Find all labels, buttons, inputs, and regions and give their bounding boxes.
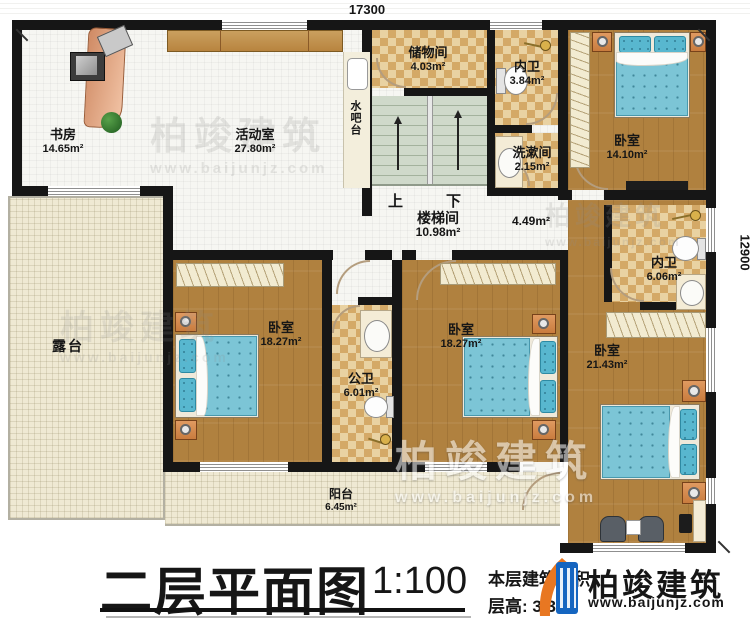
label-washroom-name: 洗漱间 xyxy=(502,146,562,161)
stairs-landing-line xyxy=(372,184,487,186)
watermark-2-url: www.baijunjz.com xyxy=(545,235,681,249)
label-stairwell-area: 10.98m² xyxy=(396,226,480,240)
dimension-right: 12900 xyxy=(738,218,750,288)
watermark-1-url: www.baijunjz.com xyxy=(150,160,327,177)
label-bedroom-left-name: 卧室 xyxy=(246,321,316,336)
label-storage-name: 储物间 xyxy=(385,46,471,61)
nightstand-tr-right-knob xyxy=(693,36,704,47)
label-bedroom-mid: 卧室 18.27m² xyxy=(426,323,496,351)
label-bedroom-mid-name: 卧室 xyxy=(426,323,496,338)
label-stairs-down: 下 xyxy=(446,190,461,211)
tv-console-bedroom-tr xyxy=(626,181,688,190)
label-washroom-area: 2.15m² xyxy=(502,161,562,174)
watermark-4-text: 柏竣建筑 xyxy=(395,438,595,485)
label-stairwell-name: 楼梯间 xyxy=(396,210,480,226)
public-bath-sink xyxy=(364,320,390,352)
speaker-br xyxy=(679,514,692,533)
label-activity: 活动室 27.80m² xyxy=(212,128,298,156)
wall-right xyxy=(706,20,716,553)
label-bath-top-name: 内卫 xyxy=(498,60,556,75)
wall-vestibule-top-right xyxy=(365,250,392,260)
window-study-bottom xyxy=(48,186,140,196)
label-bath-right-area: 6.06m² xyxy=(632,271,696,284)
label-bedroom-tr: 卧室 14.10m² xyxy=(592,134,662,162)
computer-screen-icon xyxy=(76,56,97,75)
label-study-name: 书房 xyxy=(20,128,106,143)
cabinet-divider-2 xyxy=(308,30,309,52)
wall-bedroom-left-top xyxy=(163,250,333,260)
label-bath-right-name: 内卫 xyxy=(632,256,696,271)
bed-tr-pillow-left xyxy=(619,36,651,53)
label-bath-top: 内卫 3.84m² xyxy=(498,60,556,88)
watermark-3-text: 柏竣建筑 xyxy=(60,309,220,347)
wardrobe-bedroom-tr xyxy=(570,32,590,168)
label-public-bath-area: 6.01m² xyxy=(330,387,392,400)
window-right-bath xyxy=(706,328,716,392)
label-activity-area: 27.80m² xyxy=(212,143,298,156)
title-underline-thin xyxy=(106,616,471,618)
nightstand-mid-top-knob xyxy=(538,318,549,329)
wall-bedroom-left-right xyxy=(322,260,332,462)
bed-br-pillow-bottom xyxy=(680,444,697,475)
window-bottom-bedroom-br xyxy=(593,543,685,553)
chair-br-left xyxy=(600,516,626,542)
plan-scale: 1:100 xyxy=(372,560,467,603)
window-right-bedroom-tr xyxy=(706,208,716,252)
dimension-top: 17300 xyxy=(332,2,402,17)
title-underline-thick xyxy=(100,608,465,612)
label-activity-name: 活动室 xyxy=(212,128,298,143)
watermark-4: 柏竣建筑 www.baijunjz.com xyxy=(395,428,597,507)
stairs-down-arrow-head xyxy=(454,106,462,118)
dresser-br xyxy=(693,500,706,542)
label-study: 书房 14.65m² xyxy=(20,128,106,156)
wall-public-bath-top xyxy=(358,297,392,305)
wall-bedroom-mid-top-a xyxy=(402,250,416,260)
nightstand-br-bottom-knob xyxy=(688,487,700,499)
waterbar-label: 水吧台 xyxy=(347,100,363,154)
bed-br-pillow-top xyxy=(680,409,697,440)
dim-tick-bottom-right xyxy=(718,541,731,554)
label-bath-top-area: 3.84m² xyxy=(498,75,556,88)
brand-logo-glyph-icon xyxy=(534,554,584,618)
label-bath-right: 内卫 6.06m² xyxy=(632,256,696,284)
bed-mid-sheet-fold xyxy=(528,338,540,416)
chair-br-right xyxy=(638,516,664,542)
label-bedroom-left: 卧室 18.27m² xyxy=(246,321,316,349)
brand-logo-mark xyxy=(534,554,584,618)
bed-mid-pillow-bottom xyxy=(540,380,556,413)
wall-washroom-bottom xyxy=(487,188,568,196)
shower-head-icon-right xyxy=(690,210,701,221)
watermark-2: 柏竣建筑 www.baijunjz.com xyxy=(545,196,681,251)
waterbar-sink xyxy=(347,58,368,90)
label-bedroom-br: 卧室 21.43m² xyxy=(572,344,642,372)
label-terrace: 露台 xyxy=(52,336,84,356)
label-stairs-up: 上 xyxy=(388,190,403,211)
stairs-down-arrow-line xyxy=(457,116,459,170)
window-right-bedroom-br xyxy=(706,478,716,504)
label-bedroom-mid-area: 18.27m² xyxy=(426,338,496,351)
label-public-bath-name: 公卫 xyxy=(330,372,392,387)
label-public-bath: 公卫 6.01m² xyxy=(330,372,392,400)
label-balcony-name: 阳台 xyxy=(306,488,376,502)
bed-br-blanket xyxy=(602,406,670,478)
bed-tr-pillow-right xyxy=(654,36,686,53)
shower-head-icon-public xyxy=(380,434,391,445)
nightstand-left-bottom-knob xyxy=(180,424,191,435)
shower-head-icon-top xyxy=(540,40,551,51)
wardrobe-bedroom-mid xyxy=(440,263,556,285)
wall-bedroom-mid-top-b xyxy=(452,250,568,260)
label-bedroom-br-name: 卧室 xyxy=(572,344,642,359)
bed-tr-blanket xyxy=(616,58,688,116)
stairs-up-arrow-head xyxy=(394,112,402,124)
label-washroom: 洗漱间 2.15m² xyxy=(502,146,562,174)
label-bedroom-br-area: 21.43m² xyxy=(572,359,642,372)
plan-title: 二层平面图 xyxy=(100,550,370,623)
watermark-2-text: 柏竣建筑 xyxy=(545,201,665,231)
watermark-3-url: www.baijunjz.com xyxy=(60,349,229,365)
nightstand-tr-left-knob xyxy=(597,36,608,47)
label-bedroom-tr-area: 14.10m² xyxy=(592,149,662,162)
label-balcony-area: 6.45m² xyxy=(306,502,376,514)
window-top-activity xyxy=(222,20,307,30)
label-balcony: 阳台 6.45m² xyxy=(306,488,376,513)
wall-storage-bottom xyxy=(404,88,487,96)
label-storage-area: 4.03m² xyxy=(385,61,471,74)
window-balcony-left xyxy=(200,462,288,472)
bed-br-sheet-fold xyxy=(668,406,680,478)
label-corridor-area: 4.49m² xyxy=(512,214,550,228)
label-study-area: 14.65m² xyxy=(20,143,106,156)
cabinet-counter xyxy=(167,30,343,52)
watermark-3: 柏竣建筑 www.baijunjz.com xyxy=(60,300,229,367)
side-table-br xyxy=(626,520,641,535)
label-bedroom-tr-name: 卧室 xyxy=(592,134,662,149)
label-storage: 储物间 4.03m² xyxy=(385,46,471,74)
cabinet-divider-1 xyxy=(220,30,221,52)
wall-left xyxy=(12,20,22,196)
nightstand-br-top-knob xyxy=(688,385,700,397)
wardrobe-bedroom-left xyxy=(176,263,284,287)
bath-right-sink xyxy=(680,280,704,306)
floor-plan-canvas: 17300 12900 xyxy=(0,0,750,623)
label-stairwell: 楼梯间 10.98m² xyxy=(396,210,480,240)
label-bedroom-left-area: 18.27m² xyxy=(246,336,316,349)
window-top-bath xyxy=(490,20,542,30)
watermark-4-url: www.baijunjz.com xyxy=(395,489,597,506)
bed-left-pillow-bottom xyxy=(179,378,196,412)
brand-url: www.baijunjz.com xyxy=(588,594,725,610)
wall-bath-top-bottom xyxy=(487,125,532,133)
closet-bath-right xyxy=(606,312,706,338)
bed-mid-pillow-top xyxy=(540,341,556,374)
wall-bath-column-left xyxy=(487,30,495,196)
stairs-flight-left xyxy=(372,96,427,184)
stairs-up-arrow-line xyxy=(397,122,399,170)
